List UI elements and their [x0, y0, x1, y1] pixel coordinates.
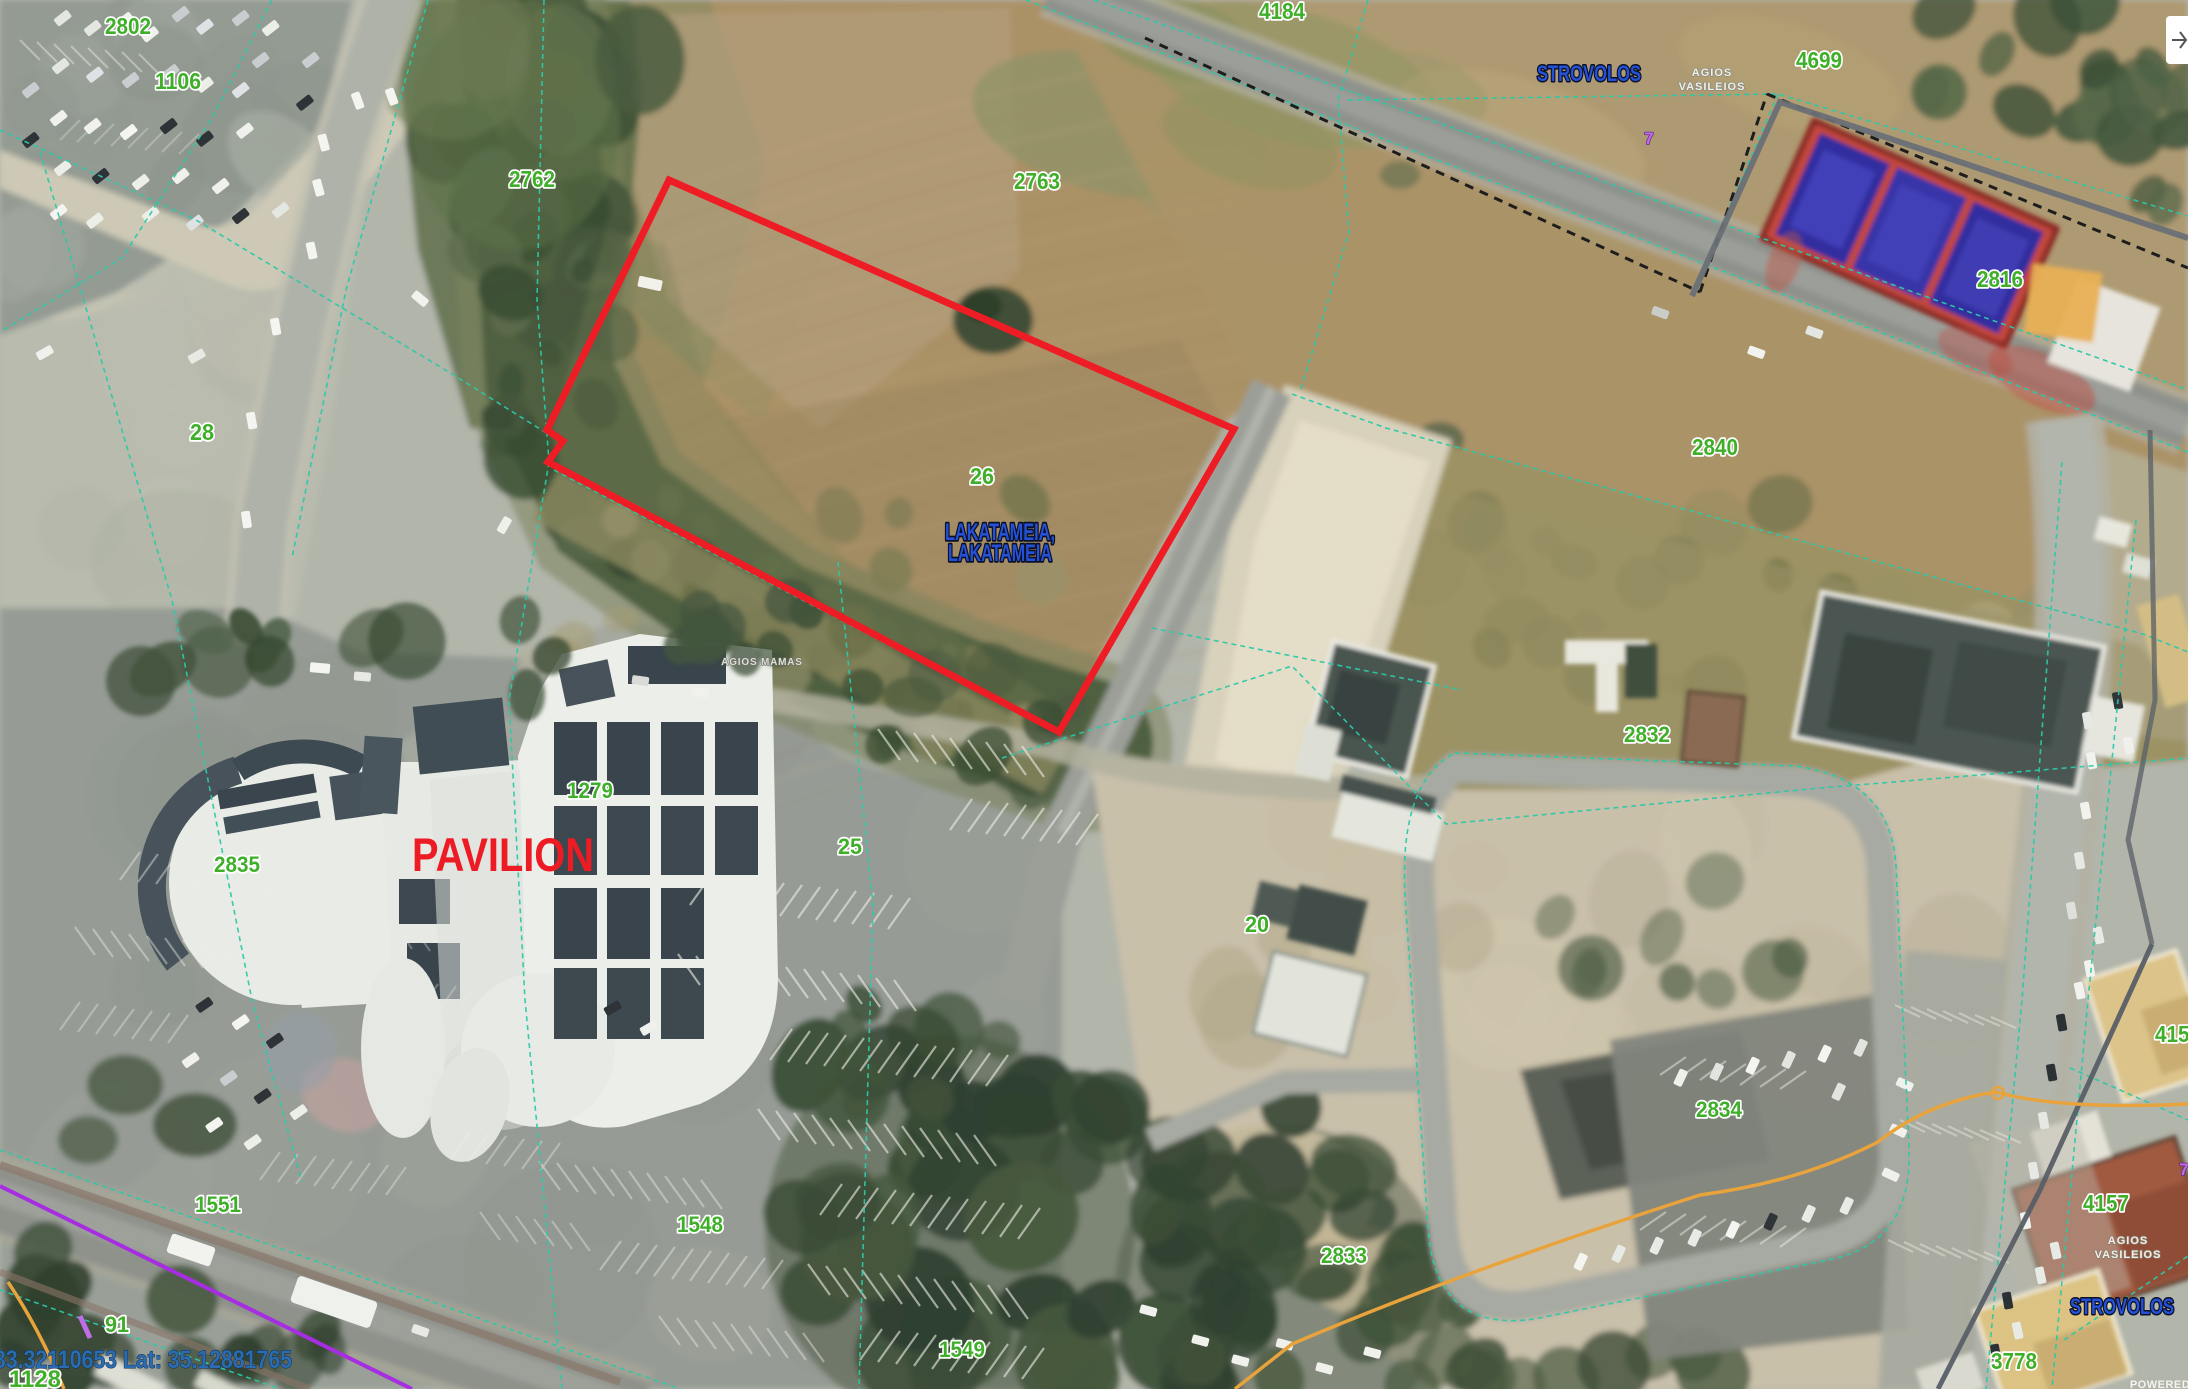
svg-text:1279: 1279 [567, 778, 613, 803]
svg-text:LAKATAMEIA: LAKATAMEIA [948, 540, 1052, 567]
svg-text:91: 91 [105, 1312, 129, 1337]
svg-text:POWERED: POWERED [2130, 1379, 2188, 1389]
svg-text:28: 28 [190, 419, 214, 445]
svg-text:PAVILION: PAVILION [412, 828, 594, 881]
svg-text:2833: 2833 [1321, 1243, 1367, 1268]
svg-text:VASILEIOS: VASILEIOS [2095, 1249, 2162, 1261]
svg-text:4184: 4184 [1259, 0, 1305, 24]
svg-text:2763: 2763 [1014, 168, 1060, 194]
svg-text:25: 25 [838, 834, 862, 859]
svg-text:VASILEIOS: VASILEIOS [1679, 81, 1746, 93]
svg-text:20: 20 [1245, 912, 1269, 937]
svg-text:4157: 4157 [2083, 1190, 2129, 1216]
svg-text:33.32110653 Lat: 35.12881765: 33.32110653 Lat: 35.12881765 [0, 1346, 292, 1374]
svg-text:STROVOLOS: STROVOLOS [1537, 61, 1641, 86]
svg-text:AGIOS MAMAS: AGIOS MAMAS [721, 657, 803, 668]
svg-text:2762: 2762 [509, 166, 555, 192]
svg-text:26: 26 [970, 463, 994, 489]
svg-text:1106: 1106 [155, 68, 201, 94]
svg-text:4155: 4155 [2155, 1021, 2188, 1047]
svg-text:1549: 1549 [939, 1337, 985, 1362]
svg-text:AGIOS: AGIOS [1692, 67, 1732, 79]
svg-text:2802: 2802 [105, 13, 151, 39]
svg-text:2834: 2834 [1696, 1097, 1743, 1122]
svg-text:7: 7 [1644, 129, 1653, 148]
svg-text:2816: 2816 [1977, 266, 2023, 292]
svg-text:4699: 4699 [1796, 47, 1842, 73]
svg-text:2832: 2832 [1624, 722, 1670, 747]
svg-text:STROVOLOS: STROVOLOS [2070, 1294, 2174, 1319]
svg-text:1548: 1548 [677, 1212, 723, 1237]
svg-text:3778: 3778 [1991, 1348, 2037, 1374]
svg-text:AGIOS: AGIOS [2108, 1235, 2148, 1247]
svg-text:1551: 1551 [195, 1192, 241, 1217]
svg-text:2835: 2835 [214, 852, 260, 877]
svg-text:7: 7 [2179, 1160, 2188, 1179]
svg-text:2840: 2840 [1692, 434, 1738, 460]
